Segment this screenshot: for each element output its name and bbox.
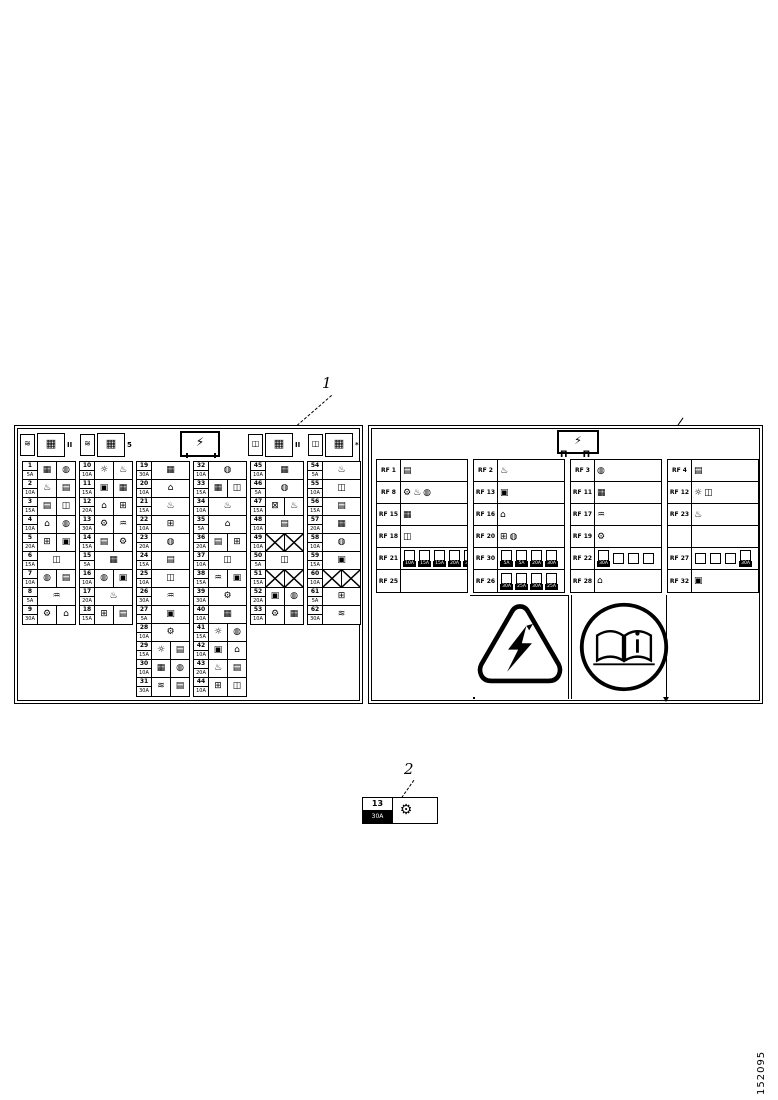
fuse-function-icon: ▣ <box>95 480 114 497</box>
fuse-function-icon: ▦ <box>38 462 57 479</box>
fuse-amp: 5A <box>251 488 265 497</box>
symbol-right-arrow <box>663 697 669 702</box>
relay-content: ▣ <box>498 482 564 503</box>
header-group: ≋▦5 <box>80 433 132 457</box>
fuse-function-icon: ▦ <box>285 606 303 624</box>
fuse-amp: 10A <box>137 668 151 677</box>
relay-subbox <box>613 553 624 564</box>
relay-function-icon: ⌂ <box>597 575 603 587</box>
fuse-amp: 15A <box>80 488 94 497</box>
relay-content <box>692 526 758 547</box>
header-small-icon: ◫ <box>248 434 263 456</box>
fuse-function-icon: ▤ <box>95 534 114 551</box>
fuse-amp: 10A <box>137 524 151 533</box>
fuse-number: 15 <box>80 552 94 560</box>
fuse-number: 9 <box>23 606 37 614</box>
fuse-number: 4 <box>23 516 37 524</box>
fuse-number-cell: 1720A <box>80 588 95 605</box>
fuse-panel-header: ⚡ ≋▦II≋▦5◫▦II◫▦* <box>18 431 359 459</box>
fuse-number-cell: 2415A <box>137 552 152 569</box>
fuse-function-icon: ◫ <box>228 480 246 497</box>
fuse-function-icon: ♨ <box>95 588 132 605</box>
fuse-number: 49 <box>251 534 265 542</box>
relay-subbox <box>531 573 542 584</box>
fuse-function-icon: ▦ <box>152 660 171 677</box>
icon-box-legs <box>186 453 216 458</box>
relay-subbox <box>710 553 721 564</box>
fuse-row: 5510A◫ <box>308 480 360 498</box>
fuse-number-cell: 5915A <box>308 552 323 569</box>
relay-subcell: 15A <box>418 550 431 567</box>
crossed-out-cell <box>285 570 303 587</box>
fuse-number-cell: 5720A <box>308 516 323 533</box>
relay-function-icon: ▣ <box>500 487 509 499</box>
fuse-row: 1220A⌂⊞ <box>80 498 132 516</box>
fuse-number-cell: 1815A <box>80 606 95 624</box>
crossed-out-cell <box>285 534 303 551</box>
relay-function-icon: ⚙ <box>597 531 605 543</box>
fuse-number-cell: 5220A <box>251 588 266 605</box>
fuse-number-cell: 355A <box>194 516 209 533</box>
fuse-row: 5720A▦ <box>308 516 360 534</box>
fuse-row: 2915A☼▤ <box>137 642 189 660</box>
fuse-function-icon: ◫ <box>152 570 189 587</box>
fuse-number-cell: 5115A <box>251 570 266 587</box>
relay-content: ⚙♨◍ <box>401 482 467 503</box>
fuse-number: 26 <box>137 588 151 596</box>
fuse-number-cell: 4410A <box>194 678 209 696</box>
fuse-number: 22 <box>137 516 151 524</box>
header-small-icon: ◫ <box>308 434 323 456</box>
fuse-function-icon: ▤ <box>57 570 75 587</box>
relay-row: RF 19⚙ <box>571 526 661 548</box>
fuse-number-cell: 4320A <box>194 660 209 677</box>
fuse-number-cell: 155A <box>80 552 95 569</box>
relay-subbox <box>516 550 527 561</box>
relay-sub-amp: 5A <box>515 561 528 567</box>
fuse-function-icon: ◍ <box>171 660 189 677</box>
relay-subbox <box>598 550 609 561</box>
crossed-out-cell <box>342 570 360 587</box>
fuse-number: 6 <box>23 552 37 560</box>
fuse-function-icon: ▣ <box>323 552 360 569</box>
relay-row: RF 305A5A20A30A <box>474 548 564 570</box>
relay-content: ♨ <box>498 460 564 481</box>
crossed-out-cell <box>266 570 285 587</box>
stray-dot <box>473 697 475 699</box>
fuse-row: 4115A☼◍ <box>194 624 246 642</box>
relay-subcell: 10A <box>403 550 416 567</box>
fuse-number: 58 <box>308 534 322 542</box>
relay-subcell: 30A <box>545 550 558 567</box>
fuse-number-cell: 1115A <box>80 480 95 497</box>
relay-label: RF 12 <box>668 482 692 503</box>
fuse-number-cell: 3410A <box>194 498 209 515</box>
relay-subcell: 5A <box>500 550 513 567</box>
fuse-amp: 15A <box>137 650 151 659</box>
relay-function-icon: ◫ <box>704 487 713 499</box>
relay-subbox <box>501 550 512 561</box>
fuse-number-cell: 3130A <box>137 678 152 696</box>
relay-row: RF 11▦ <box>571 482 661 504</box>
relay-subcell <box>694 553 707 564</box>
fuse-function-icon: ▣ <box>228 570 246 587</box>
fuse-number: 11 <box>80 480 94 488</box>
fuse-amp: 5A <box>80 560 94 569</box>
fuse-row: 6230A≋ <box>308 606 360 624</box>
relay-row: RF 16⌂ <box>474 504 564 526</box>
fuse-number-cell: 1415A <box>80 534 95 551</box>
relay-row: RF 8⚙♨◍ <box>377 482 467 504</box>
relay-label: RF 3 <box>571 460 595 481</box>
fuse-number-cell: 1930A <box>137 462 152 479</box>
relay-sub-amp: 20A <box>448 561 461 567</box>
relay-function-icon: ♒ <box>597 509 605 521</box>
fuse-amp: 15A <box>251 506 265 515</box>
header-group: ◫▦* <box>308 433 359 457</box>
fuse-row: 4715A⊠♨ <box>251 498 303 516</box>
fuse-number-cell: 410A <box>23 516 38 533</box>
relay-subbox <box>464 550 467 561</box>
fuse-mini-number: 13 <box>363 798 392 811</box>
fuse-amp: 10A <box>308 542 322 551</box>
fuse-row: 3210A◍ <box>194 462 246 480</box>
fuse-row: 410A⌂◍ <box>23 516 75 534</box>
truck-front-icon: ▦ <box>325 433 353 457</box>
relay-subbox <box>516 573 527 584</box>
fuse-amp: 5A <box>23 470 37 479</box>
fuse-number: 16 <box>80 570 94 578</box>
fuse-group: 545A♨5510A◫5615A▤5720A▦5810A◍5915A▣6010A… <box>307 461 361 625</box>
fuse-number: 34 <box>194 498 208 506</box>
fuse-row: 5810A◍ <box>308 534 360 552</box>
relay-function-icon: ▦ <box>597 487 606 499</box>
relay-content: 30A25A30A25A <box>498 570 564 592</box>
fuse-number: 25 <box>137 570 151 578</box>
fuse-number-cell: 520A <box>23 534 38 551</box>
fuse-number: 48 <box>251 516 265 524</box>
relay-subcell: 30A <box>500 573 513 590</box>
fuse-amp: 20A <box>80 596 94 605</box>
fuse-function-icon: ◫ <box>209 552 246 569</box>
fuse-row: 505A◫ <box>251 552 303 570</box>
fuse-number-cell: 545A <box>308 462 323 479</box>
fuse-row: 3815A♒▣ <box>194 570 246 588</box>
fuse-amp: 20A <box>80 506 94 515</box>
fuse-number: 53 <box>251 606 265 614</box>
relay-label: RF 15 <box>377 504 401 525</box>
fuse-function-icon: ◫ <box>57 498 75 515</box>
fuse-function-icon: ♒ <box>152 588 189 605</box>
fuse-function-icon: ♒ <box>38 588 75 605</box>
fuse-amp: 15A <box>23 506 37 515</box>
fuse-function-icon: ♨ <box>38 480 57 497</box>
fuse-function-icon: ◍ <box>323 534 360 551</box>
fuse-function-icon: ▤ <box>323 498 360 515</box>
fuse-function-icon: ♨ <box>209 498 246 515</box>
relay-group: RF 2♨RF 13▣RF 16⌂RF 20⊞◍RF 305A5A20A30AR… <box>473 459 565 593</box>
fuse-number-cell: 15A <box>23 462 38 479</box>
fuse-number: 47 <box>251 498 265 506</box>
fuse-function-icon: ⌂ <box>228 642 246 659</box>
relay-sub-amp: 20A <box>530 561 543 567</box>
fuse-number-cell: 465A <box>251 480 266 497</box>
fuse-row: 315A▤◫ <box>23 498 75 516</box>
fuse-function-icon: ▦ <box>114 480 132 497</box>
header-tag: 5 <box>127 441 132 449</box>
relay-row: RF 25 <box>377 570 467 592</box>
relay-content: ▤ <box>401 460 467 481</box>
fuse-amp: 20A <box>194 542 208 551</box>
relay-function-icon: ⌂ <box>500 509 506 521</box>
header-group: ◫▦II <box>248 433 300 457</box>
callout-2: 2 <box>404 760 414 778</box>
symbol-top-line <box>470 595 569 596</box>
fuse-number-cell: 4910A <box>251 534 266 551</box>
relay-subcell <box>612 553 625 564</box>
fuse-number-cell: 3010A <box>137 660 152 677</box>
fuse-number-cell: 2810A <box>137 624 152 641</box>
relay-row: RF 28⌂ <box>571 570 661 592</box>
fuse-row: 2210A⊞ <box>137 516 189 534</box>
fuse-row: 1815A⊞▤ <box>80 606 132 624</box>
fuse-amp: 10A <box>308 488 322 497</box>
fuse-function-icon: ⊞ <box>152 516 189 533</box>
relay-row: RF 15▦ <box>377 504 467 526</box>
fuse-row: 3315A▦◫ <box>194 480 246 498</box>
fuse-number-cell: 2210A <box>137 516 152 533</box>
fuse-function-icon: ▦ <box>95 552 132 569</box>
fuse-amp: 15A <box>194 632 208 641</box>
relay-function-icon: ◍ <box>510 531 518 543</box>
fuse-number: 21 <box>137 498 151 506</box>
symbol-divider-line-a <box>568 595 569 699</box>
relay-row: RF 17♒ <box>571 504 661 526</box>
fuse-number: 10 <box>80 462 94 470</box>
fuse-number: 27 <box>137 606 151 614</box>
fuse-number-cell: 275A <box>137 606 152 623</box>
fuse-row: 3130A≋▤ <box>137 678 189 696</box>
relay-function-icon: ☼ <box>694 487 702 499</box>
fuse-row: 3010A▦◍ <box>137 660 189 678</box>
fuse-function-icon: ⚙ <box>95 516 114 533</box>
fuse-amp: 15A <box>137 560 151 569</box>
relay-function-icon: ◍ <box>423 487 431 499</box>
relay-panel-decal: ⚡ Π Π RF 1▤RF 8⚙♨◍RF 15▦RF 18◫RF 2110A15… <box>368 425 763 704</box>
truck-front-icon: ▦ <box>97 433 125 457</box>
relay-sub-amp: 10A <box>403 561 416 567</box>
fuse-row: 275A▣ <box>137 606 189 624</box>
fuse-amp: 20A <box>137 542 151 551</box>
fuse-amp: 5A <box>23 596 37 605</box>
fuse-amp: 30A <box>137 470 151 479</box>
fuse-number: 13 <box>80 516 94 524</box>
fuse-function-icon: ⌂ <box>95 498 114 515</box>
relay-function-icon: ▣ <box>694 575 703 587</box>
fuse-number: 2 <box>23 480 37 488</box>
relay-sub-amp: 30A <box>739 561 752 567</box>
fuse-amp: 10A <box>137 578 151 587</box>
relay-row: RF 2730A <box>668 548 758 570</box>
header-small-icon: ≋ <box>80 434 95 456</box>
fuse-function-icon: ▤ <box>171 678 189 696</box>
high-voltage-warning-icon <box>474 599 566 693</box>
fuse-number: 38 <box>194 570 208 578</box>
relay-row: RF 13▣ <box>474 482 564 504</box>
relay-label: RF 11 <box>571 482 595 503</box>
relay-sub-amp: 15A <box>418 561 431 567</box>
fuse-row: 2810A⚙ <box>137 624 189 642</box>
fuse-row: 5615A▤ <box>308 498 360 516</box>
fuse-amp: 10A <box>194 470 208 479</box>
fuse-number: 44 <box>194 678 208 686</box>
fuse-amp: 10A <box>251 524 265 533</box>
relay-subcell: 30A <box>739 550 752 567</box>
fuse-number: 14 <box>80 534 94 542</box>
relay-function-icon: ♨ <box>413 487 421 499</box>
operators-manual-icon <box>576 597 672 697</box>
relay-subcell <box>627 553 640 564</box>
fuse-number-cell: 6010A <box>308 570 323 587</box>
fuse-amp: 15A <box>308 506 322 515</box>
fuse-function-icon: ▦ <box>209 606 246 623</box>
relay-label: RF 13 <box>474 482 498 503</box>
fuse-function-icon: ◍ <box>57 516 75 533</box>
fuse-row: 5115A <box>251 570 303 588</box>
fuse-row: 545A♨ <box>308 462 360 480</box>
relay-label: RF 16 <box>474 504 498 525</box>
fuse-number: 43 <box>194 660 208 668</box>
relay-content: ♒ <box>595 504 661 525</box>
relay-subbox <box>404 550 415 561</box>
fuse-number: 36 <box>194 534 208 542</box>
fuse-function-icon: ⚙ <box>209 588 246 605</box>
fuse-function-icon: ◍ <box>38 570 57 587</box>
fuse-panel-inner: ⚡ ≋▦II≋▦5◫▦II◫▦* 15A▦◍210A♨▤315A▤◫410A⌂◍… <box>17 428 360 701</box>
fuse-row: 2630A♒ <box>137 588 189 606</box>
fuse-function-icon: ≋ <box>323 606 360 624</box>
relay-content: ⚙ <box>595 526 661 547</box>
relay-content: 30A <box>692 548 758 569</box>
fuse-row: 2320A◍ <box>137 534 189 552</box>
relay-function-icon: ⊞ <box>500 531 508 543</box>
fuse-row: 5220A▣◍ <box>251 588 303 606</box>
fuse-number-cell: 2510A <box>137 570 152 587</box>
fuse-number: 7 <box>23 570 37 578</box>
fuse-row: 15A▦◍ <box>23 462 75 480</box>
fuse-number: 61 <box>308 588 322 596</box>
relay-row: RF 2630A25A30A25A <box>474 570 564 592</box>
relay-subbox <box>725 553 736 564</box>
fuse-function-icon: ▣ <box>266 588 285 605</box>
fuse-amp: 5A <box>251 560 265 569</box>
relay-sub-amp: 5A <box>500 561 513 567</box>
relay-content: ▦ <box>401 504 467 525</box>
fuse-amp: 10A <box>137 632 151 641</box>
fuse-amp: 15A <box>194 488 208 497</box>
fuse-number: 39 <box>194 588 208 596</box>
relay-content: ♨ <box>692 504 758 525</box>
fuse-number: 55 <box>308 480 322 488</box>
relay-label: RF 2 <box>474 460 498 481</box>
relay-sub-amp: 25A <box>545 584 558 590</box>
relay-label: RF 22 <box>571 548 595 569</box>
fuse-amp: 10A <box>194 506 208 515</box>
relay-label: RF 4 <box>668 460 692 481</box>
fuse-number-cell: 3710A <box>194 552 209 569</box>
fuse-function-icon: ♨ <box>114 462 132 479</box>
fuse-number-cell: 3930A <box>194 588 209 605</box>
relay-label: RF 18 <box>377 526 401 547</box>
fuse-function-icon: ▣ <box>57 534 75 551</box>
fuse-amp: 10A <box>194 650 208 659</box>
relay-subcell: 25A <box>545 573 558 590</box>
fuse-function-icon: ◫ <box>323 480 360 497</box>
relay-content: ◍ <box>595 460 661 481</box>
header-group: ≋▦II <box>20 433 72 457</box>
crossed-out-cell <box>266 534 285 551</box>
relay-content: ⊞◍ <box>498 526 564 547</box>
fuse-number-cell: 210A <box>23 480 38 497</box>
fuse-row: 520A⊞▣ <box>23 534 75 552</box>
figure-page: 1 ⚡ ≋▦II≋▦5◫▦II◫▦* 15A▦◍210A♨▤315A▤◫410A… <box>0 0 778 1100</box>
fuse-function-icon: ▦ <box>209 480 228 497</box>
fuse-function-icon: ▤ <box>114 606 132 624</box>
fuse-number-cell: 4115A <box>194 624 209 641</box>
fuse-number: 42 <box>194 642 208 650</box>
fuse-number: 23 <box>137 534 151 542</box>
fuse-row: 6010A <box>308 570 360 588</box>
fuse-amp: 30A <box>308 614 322 624</box>
fuse-number-cell: 615A <box>308 588 323 605</box>
fuse-amp: 5A <box>308 596 322 605</box>
fuse-row: 2010A⌂ <box>137 480 189 498</box>
fuse-function-icon: ▦ <box>152 462 189 479</box>
relay-subbox <box>501 573 512 584</box>
header-tag: II <box>295 441 300 449</box>
fuse-function-icon: ⊞ <box>209 678 228 696</box>
relay-label: RF 27 <box>668 548 692 569</box>
relay-subbox <box>740 550 751 561</box>
relay-subcell: 20A <box>448 550 461 567</box>
fuse-number: 3 <box>23 498 37 506</box>
fuse-number-cell: 3315A <box>194 480 209 497</box>
fuse-amp: 30A <box>80 524 94 533</box>
fuse-number-cell: 315A <box>23 498 38 515</box>
fuse-row: 710A◍▤ <box>23 570 75 588</box>
fuse-number-cell: 5810A <box>308 534 323 551</box>
relay-sub-amp: 30A <box>597 561 610 567</box>
fuse-amp: 10A <box>194 614 208 623</box>
fuse-number-cell: 85A <box>23 588 38 605</box>
fuse-number: 24 <box>137 552 151 560</box>
fuse-row: 465A◍ <box>251 480 303 498</box>
fuse-number: 8 <box>23 588 37 596</box>
fuse-amp: 20A <box>308 524 322 533</box>
fuse-number-cell: 2630A <box>137 588 152 605</box>
fuse-function-icon: ⊞ <box>95 606 114 624</box>
fuse-row: 85A♒ <box>23 588 75 606</box>
fuse-function-icon: ▤ <box>266 516 303 533</box>
fuse-group: 4510A▦465A◍4715A⊠♨4810A▤4910A505A◫5115A5… <box>250 461 304 625</box>
relay-function-icon: ◫ <box>403 531 412 543</box>
fuse-row: 1415A▤⚙ <box>80 534 132 552</box>
fuse-number-cell: 5510A <box>308 480 323 497</box>
fuse-function-icon: ♨ <box>209 660 228 677</box>
relay-function-icon: ⚙ <box>403 487 411 499</box>
fuse-row: 615A◫ <box>23 552 75 570</box>
relay-row: RF 23♨ <box>668 504 758 526</box>
